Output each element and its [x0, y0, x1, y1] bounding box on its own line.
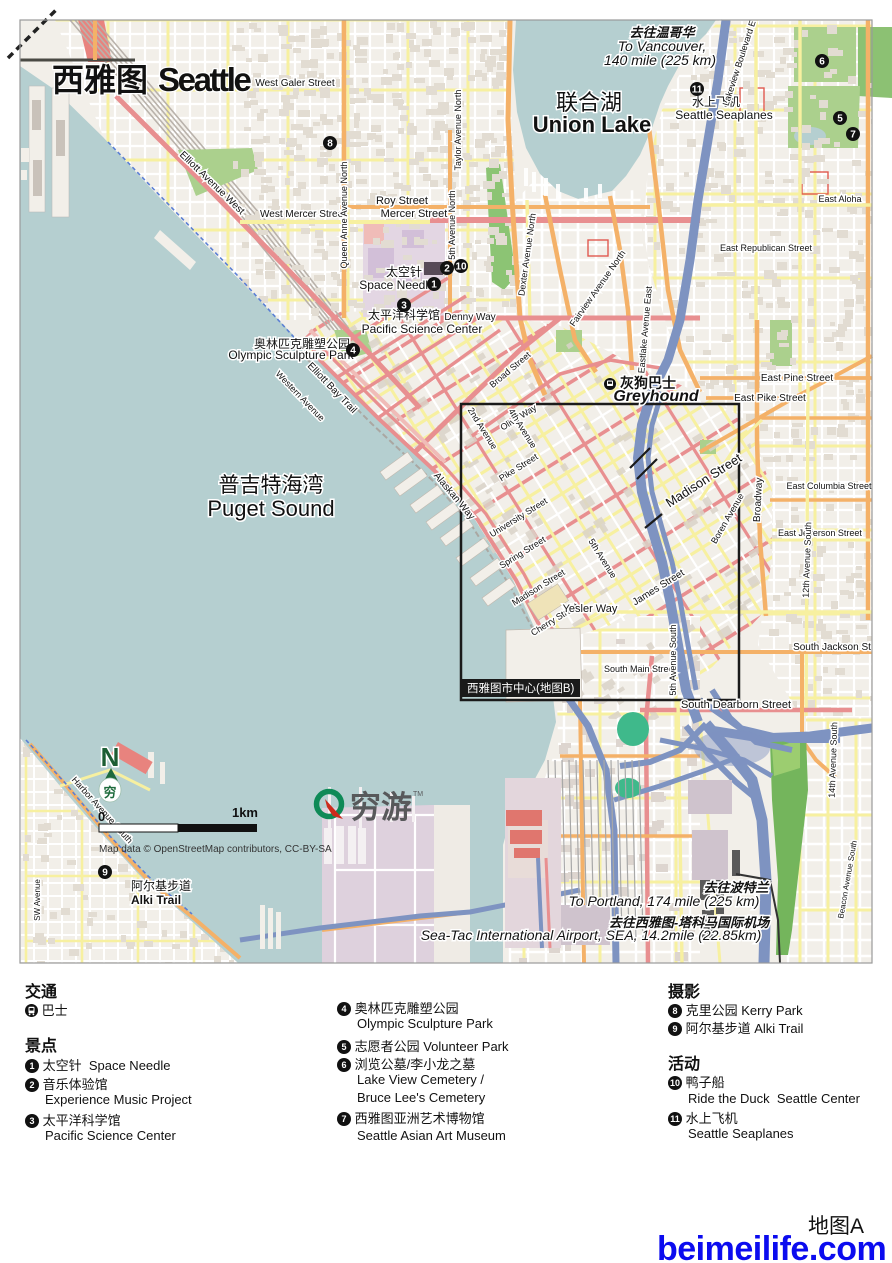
svg-text:8: 8 [327, 139, 333, 150]
svg-text:普吉特海湾: 普吉特海湾 [219, 474, 324, 497]
svg-text:9: 9 [102, 868, 108, 879]
svg-text:Denny Way: Denny Way [444, 312, 495, 323]
svg-text:SW Avenue: SW Avenue [33, 879, 42, 921]
svg-text:South Dearborn Street: South Dearborn Street [681, 699, 791, 711]
svg-text:South Main Street: South Main Street [604, 664, 677, 674]
svg-text:N: N [101, 742, 120, 772]
svg-text:West Galer Street: West Galer Street [255, 78, 335, 89]
svg-text:East Pike Street: East Pike Street [734, 393, 806, 404]
svg-text:140 mile (225 km): 140 mile (225 km) [604, 52, 716, 68]
svg-text:To Portland, 174 mile (225 km): To Portland, 174 mile (225 km) [569, 893, 760, 909]
svg-text:Space Needle: Space Needle [359, 278, 435, 292]
svg-text:太空针: 太空针 [386, 264, 422, 279]
svg-text:西雅图: 西雅图 [52, 62, 148, 98]
svg-text:7: 7 [850, 130, 856, 141]
svg-text:South Jackson St: South Jackson St [793, 642, 871, 653]
svg-text:Queen Anne Avenue North: Queen Anne Avenue North [339, 162, 349, 269]
svg-text:Pacific Science Center: Pacific Science Center [362, 322, 483, 336]
svg-text:1: 1 [431, 280, 437, 291]
svg-text:5th Avenue South: 5th Avenue South [668, 625, 678, 696]
svg-text:穷游: 穷游 [350, 790, 412, 825]
svg-text:西雅图市中心(地图B): 西雅图市中心(地图B) [467, 681, 574, 695]
svg-text:East Aloha: East Aloha [818, 194, 861, 204]
svg-text:阿尔基步道: 阿尔基步道 [131, 878, 191, 893]
svg-text:2: 2 [444, 264, 450, 275]
svg-text:Map data © OpenStreetMap contr: Map data © OpenStreetMap contributors, C… [99, 844, 332, 855]
svg-text:East Columbia Street: East Columbia Street [786, 481, 872, 491]
svg-text:穷: 穷 [103, 785, 116, 800]
svg-text:3: 3 [401, 301, 407, 312]
svg-text:Mercer Street: Mercer Street [381, 208, 448, 220]
svg-text:10: 10 [455, 262, 467, 273]
svg-text:Taylor Avenue North: Taylor Avenue North [453, 90, 463, 171]
svg-text:TM: TM [413, 791, 423, 798]
svg-text:Roy Street: Roy Street [376, 195, 428, 207]
svg-text:Alki Trail: Alki Trail [131, 893, 181, 907]
svg-text:Seattle: Seattle [158, 61, 251, 98]
svg-text:6: 6 [819, 57, 825, 68]
svg-text:Olympic Sculpture Park: Olympic Sculpture Park [228, 348, 354, 362]
svg-text:5th Avenue North: 5th Avenue North [447, 190, 457, 259]
svg-text:Union Lake: Union Lake [533, 112, 652, 137]
svg-text:1km: 1km [232, 805, 258, 820]
svg-text:5: 5 [837, 114, 843, 125]
svg-text:East Pine Street: East Pine Street [761, 373, 833, 384]
svg-text:Greyhound: Greyhound [613, 388, 700, 405]
svg-text:4: 4 [350, 346, 356, 357]
svg-text:Puget Sound: Puget Sound [207, 496, 334, 521]
svg-text:Seattle Seaplanes: Seattle Seaplanes [675, 108, 772, 122]
svg-text:11: 11 [692, 85, 703, 96]
svg-text:East Jefferson Street: East Jefferson Street [778, 528, 862, 538]
svg-text:Broadway: Broadway [752, 477, 765, 522]
svg-text:Yesler Way: Yesler Way [563, 603, 618, 615]
svg-text:0: 0 [98, 809, 105, 824]
svg-text:East Republican Street: East Republican Street [720, 243, 813, 253]
svg-text:Sea-Tac International Airport,: Sea-Tac International Airport, SEA, 14.2… [421, 927, 762, 943]
svg-text:West Mercer Street: West Mercer Street [260, 209, 346, 220]
